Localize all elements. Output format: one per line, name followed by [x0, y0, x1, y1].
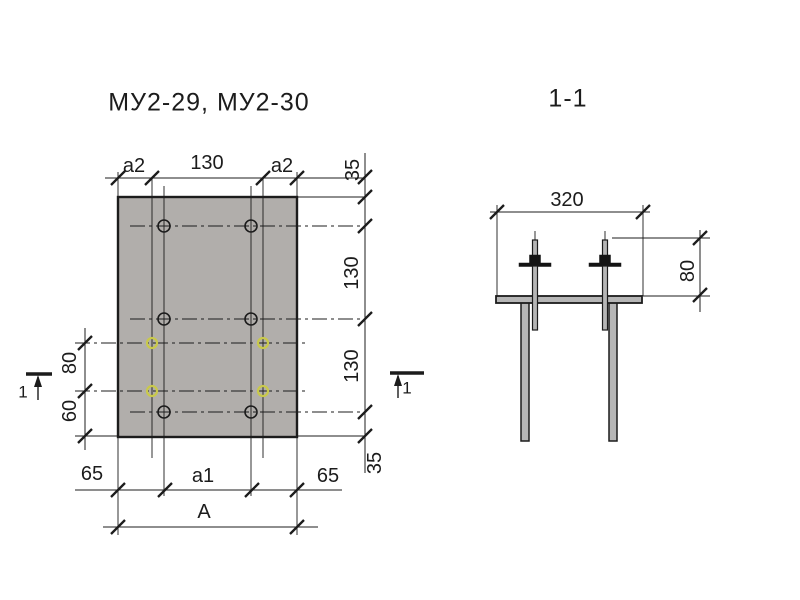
section-arrow-icon	[34, 375, 42, 387]
cut-label-left: 1	[18, 384, 27, 401]
dim-label-130-right-lower: 130	[342, 349, 362, 382]
dim-label-A: A	[197, 502, 210, 522]
nut	[600, 255, 611, 264]
drawing-canvas: МУ2-29, МУ2-30 1-1 a2 130 a2 35 130 130 …	[0, 0, 800, 600]
dim-label-65-left: 65	[81, 464, 103, 484]
dim-label-a1: a1	[192, 466, 214, 486]
section-arrow-icon	[394, 374, 402, 386]
section-title: 1-1	[548, 87, 587, 112]
dim-label-80-section: 80	[678, 260, 698, 282]
base-plate-section	[496, 296, 642, 303]
nut	[530, 255, 541, 264]
anchor-leg-right	[609, 298, 617, 441]
dim-label-130-right-upper: 130	[342, 256, 362, 289]
plan-title: МУ2-29, МУ2-30	[108, 91, 309, 116]
dim-label-35-bottom: 35	[365, 452, 385, 474]
cut-label-right: 1	[402, 380, 411, 397]
dim-label-320: 320	[550, 190, 583, 210]
dim-label-80-left: 80	[60, 352, 80, 374]
dim-line-left	[78, 328, 92, 450]
dim-line-bottom-A	[103, 520, 318, 534]
section-view	[490, 205, 710, 441]
dim-label-130-top: 130	[190, 153, 223, 173]
base-plate-plan	[118, 197, 297, 437]
dim-label-a2-left: a2	[123, 156, 145, 176]
dim-line-right	[358, 153, 372, 473]
dim-label-35-top: 35	[343, 159, 363, 181]
section-cut-marker-left	[26, 374, 52, 400]
dim-label-65-right: 65	[317, 466, 339, 486]
dim-label-60-left: 60	[60, 400, 80, 422]
anchor-leg-left	[521, 298, 529, 441]
dim-label-a2-right: a2	[271, 156, 293, 176]
